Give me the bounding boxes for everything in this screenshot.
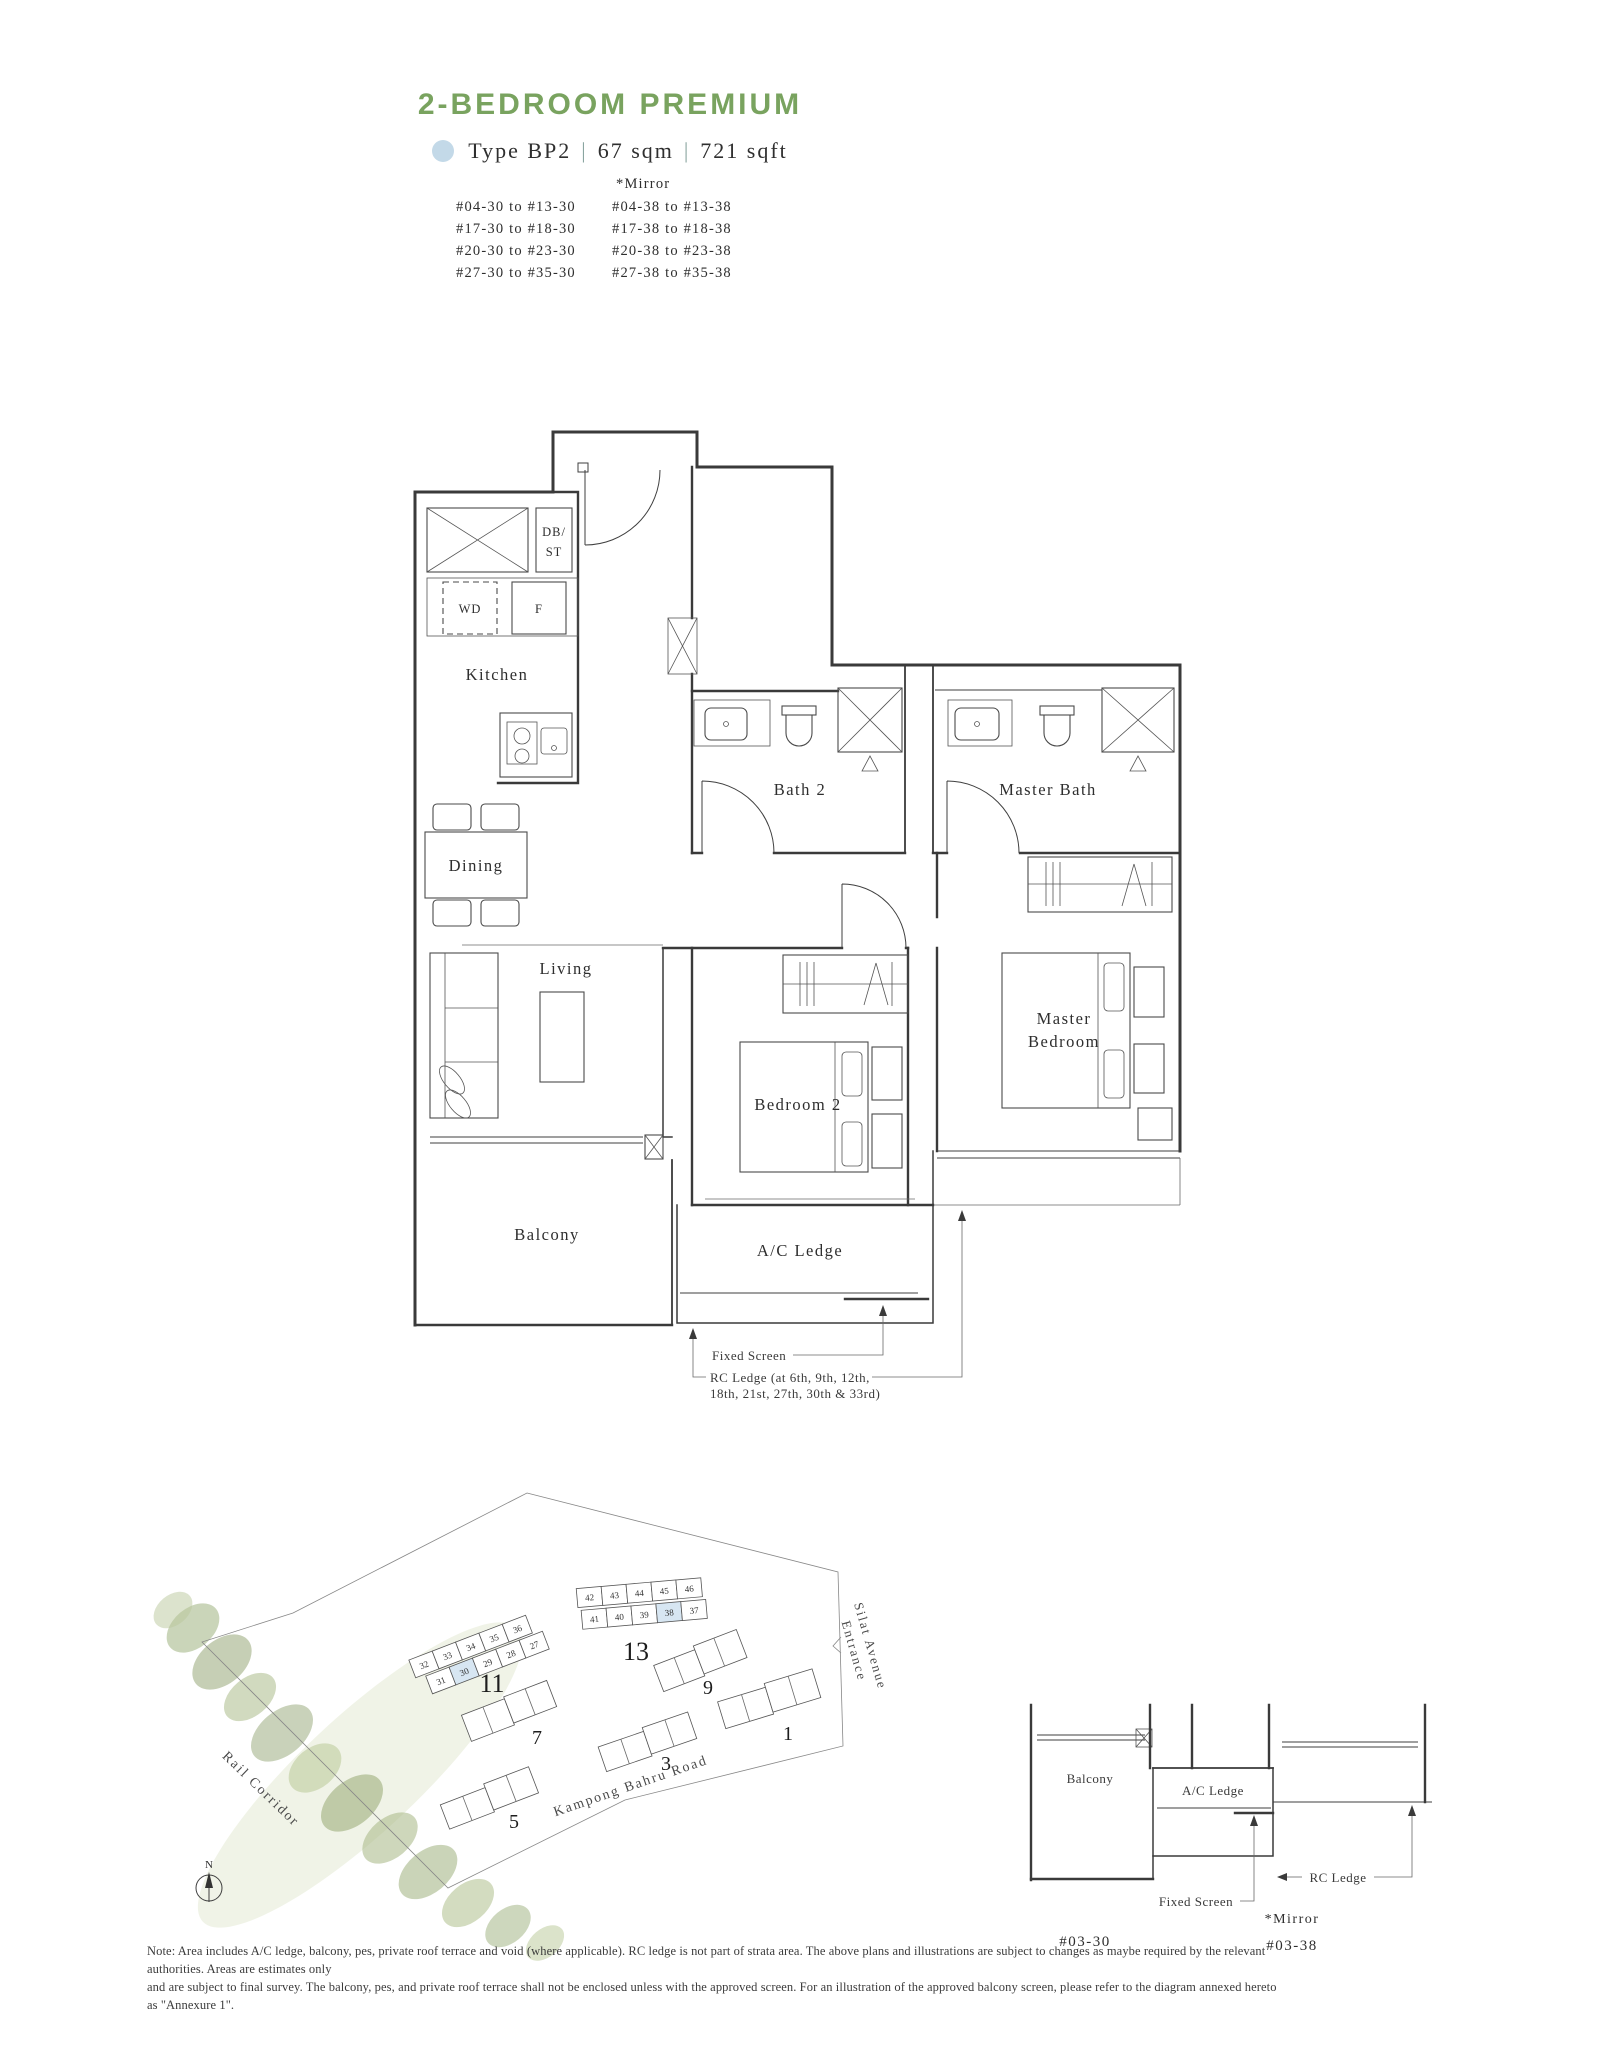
mirror-stack-header: *Mirror	[616, 176, 670, 193]
detail-balcony-label: Balcony	[1067, 1771, 1114, 1786]
separator: |	[674, 138, 700, 163]
area-sqm: 67 sqm	[598, 138, 674, 163]
detail-fixed-screen-label: Fixed Screen	[1159, 1894, 1233, 1909]
unit-cell-label: 43	[610, 1590, 620, 1601]
ac-ledge-walls	[677, 1205, 933, 1323]
master-bedroom-furniture	[1002, 857, 1172, 1140]
page-title: 2-BEDROOM PREMIUM	[300, 88, 920, 122]
type-label: Type BP2|67 sqm|721 sqft	[468, 138, 788, 164]
building-13-label: 13	[623, 1637, 649, 1666]
unit-cell-label: 45	[659, 1586, 669, 1597]
building-13: 42 43 44 45 46 41 40 39 38 37	[576, 1578, 707, 1630]
rc-ledge-note-line2: 18th, 21st, 27th, 30th & 33rd)	[710, 1386, 880, 1401]
master-bath-fixtures	[948, 688, 1174, 771]
room-labels: Kitchen DB/ ST WD F Dining Living Bath 2…	[449, 525, 1100, 1260]
silat-avenue-entrance-label: Silat Avenue Entrance	[835, 1601, 892, 1701]
unit-cell-label: 42	[585, 1592, 595, 1603]
ac-ledge-label: A/C Ledge	[757, 1241, 843, 1260]
bedroom2-label: Bedroom 2	[754, 1095, 841, 1114]
floorplan-page: 2-BEDROOM PREMIUM Type BP2|67 sqm|721 sq…	[0, 0, 1600, 2070]
rc-ledge-note-line1: RC Ledge (at 6th, 9th, 12th,	[710, 1370, 870, 1385]
master-bedroom-label: MasterBedroom	[1028, 1009, 1100, 1051]
balcony-label: Balcony	[514, 1225, 580, 1244]
stack-row: #20-38 to #23-38	[612, 240, 732, 262]
detail-rc-ledge-label: RC Ledge	[1309, 1870, 1366, 1885]
plan-annotations: Fixed Screen RC Ledge (at 6th, 9th, 12th…	[689, 1210, 966, 1401]
disclaimer-note: Note: Area includes A/C ledge, balcony, …	[147, 1942, 1277, 2015]
bedroom2-door	[842, 884, 906, 948]
db-st-label: DB/	[542, 525, 566, 539]
entry-door	[578, 463, 660, 545]
bath2-label: Bath 2	[774, 780, 827, 799]
note-line: and are subject to final survey. The bal…	[147, 1978, 1277, 2014]
unit-cell-label: 40	[614, 1612, 624, 1623]
living-label: Living	[540, 959, 593, 978]
stack-row: #04-30 to #13-30	[456, 196, 576, 218]
detail-ac-ledge-label: A/C Ledge	[1182, 1783, 1244, 1798]
building-1-label: 1	[783, 1723, 793, 1745]
stack-row: #04-38 to #13-38	[612, 196, 732, 218]
building-11-label: 11	[479, 1669, 504, 1698]
floor-plan: Kitchen DB/ ST WD F Dining Living Bath 2…	[400, 420, 1200, 1430]
unit-stack-list: #04-30 to #13-30 #17-30 to #18-30 #20-30…	[456, 196, 576, 284]
stack-row: #17-38 to #18-38	[612, 218, 732, 240]
type-name: Type BP2	[468, 138, 571, 163]
detail-labels: Balcony A/C Ledge RC Ledge Fixed Screen …	[1059, 1771, 1416, 1954]
note-line: Note: Area includes A/C ledge, balcony, …	[147, 1942, 1277, 1978]
unit-cell-label-highlighted: 38	[664, 1607, 674, 1618]
separator: |	[571, 138, 597, 163]
washer-dryer-label: WD	[459, 602, 482, 616]
windows	[430, 1137, 1180, 1205]
unit-stack-list-mirror: #04-38 to #13-38 #17-38 to #18-38 #20-38…	[612, 196, 732, 284]
bath2-fixtures	[694, 688, 902, 771]
outer-walls	[415, 432, 1180, 1325]
unit-cell-label: 37	[689, 1605, 699, 1616]
type-color-dot	[432, 140, 454, 162]
living-furniture	[430, 953, 584, 1122]
unit-cell-label: 46	[684, 1583, 694, 1594]
building-5	[439, 1767, 539, 1829]
ledge-detail-diagram: Balcony A/C Ledge RC Ledge Fixed Screen …	[1010, 1690, 1450, 1970]
detail-mirror-label: *Mirror	[1265, 1912, 1320, 1927]
stack-row: #27-30 to #35-30	[456, 262, 576, 284]
area-sqft: 721 sqft	[700, 138, 788, 163]
balcony-slider	[645, 1135, 663, 1159]
stack-row: #20-30 to #23-30	[456, 240, 576, 262]
site-plan: 32 33 34 35 36 31 30 29 28 27 11 42 43 4…	[120, 1480, 900, 1970]
building-9-label: 9	[703, 1677, 713, 1699]
unit-cell-label: 41	[590, 1614, 600, 1625]
fixed-screen-note: Fixed Screen	[712, 1348, 786, 1363]
dining-label: Dining	[449, 856, 504, 875]
unit-cell-label: 44	[634, 1588, 644, 1599]
kitchen-label: Kitchen	[466, 665, 529, 684]
building-7-label: 7	[532, 1727, 542, 1749]
unit-cell-label: 39	[639, 1609, 649, 1620]
fridge-label: F	[535, 602, 543, 616]
stack-row: #27-38 to #35-38	[612, 262, 732, 284]
building-5-label: 5	[509, 1811, 519, 1833]
bath2-door	[702, 781, 774, 853]
stack-row: #17-30 to #18-30	[456, 218, 576, 240]
unit-type-legend: Type BP2|67 sqm|721 sqft	[300, 138, 920, 164]
building-9	[652, 1629, 747, 1691]
north-label: N	[205, 1859, 213, 1871]
master-bath-label: Master Bath	[999, 780, 1097, 799]
db-st-label2: ST	[546, 545, 563, 559]
building-1	[716, 1669, 821, 1729]
bedroom2-furniture	[740, 955, 908, 1172]
